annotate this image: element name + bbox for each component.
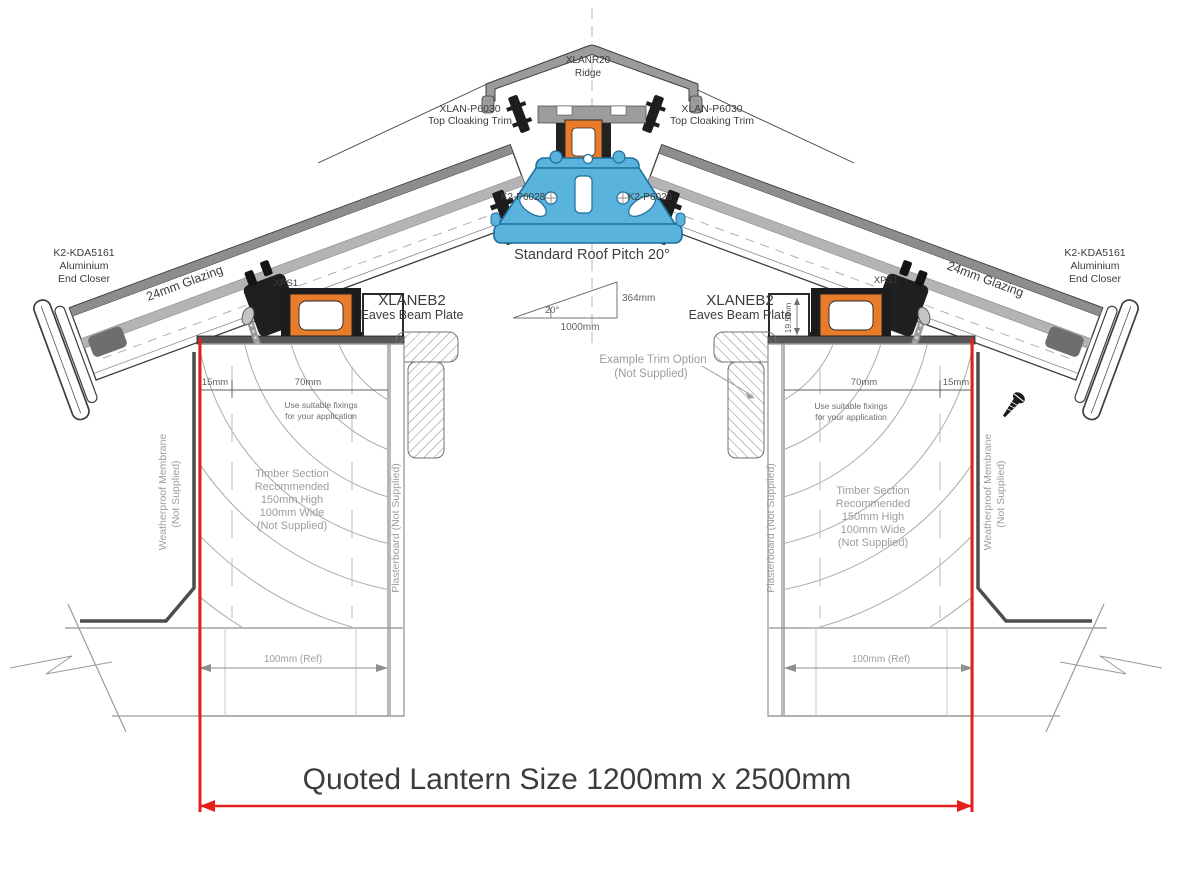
timber-note-right-2: Recommended xyxy=(836,498,911,510)
plasterboard-note-left: Plasterboard (Not Supplied) xyxy=(390,463,402,593)
end-closer-code-right: K2-KDA5161 xyxy=(1064,247,1125,259)
roof-pitch-label: Standard Roof Pitch 20° xyxy=(514,247,670,263)
timber-note-right-5: (Not Supplied) xyxy=(838,537,908,549)
plasterboard-note-right: Plasterboard (Not Supplied) xyxy=(765,463,777,593)
eaves-beam-code-left: XLANEB2 xyxy=(378,292,446,309)
end-closer-line3-right: End Closer xyxy=(1069,273,1121,285)
end-closer-line2-left: Aluminium xyxy=(59,260,108,272)
screw-icon xyxy=(999,390,1027,421)
fixing-note-right-1: Use suitable fixings xyxy=(814,401,887,411)
pitch-angle-label: 20° xyxy=(545,305,560,316)
timber-note-left-1: Timber Section xyxy=(255,468,329,480)
ref-dim-right: 100mm (Ref) xyxy=(852,654,910,665)
timber-note-left-5: (Not Supplied) xyxy=(257,520,327,532)
eaves-beam-name-right: Eaves Beam Plate xyxy=(689,308,792,322)
membrane-note-left-1: Weatherproof Membrane xyxy=(157,434,169,551)
pitch-run-label: 1000mm xyxy=(561,322,600,333)
timber-note-right-1: Timber Section xyxy=(836,485,910,497)
xps1-label-right: XPS1 xyxy=(874,275,898,286)
quoted-size-label: Quoted Lantern Size 1200mm x 2500mm xyxy=(303,763,852,796)
top-cloaking-trim-name-right: Top Cloaking Trim xyxy=(670,115,754,127)
fixing-note-left-2: for your application xyxy=(285,411,357,421)
ref-dim-left: 100mm (Ref) xyxy=(264,654,322,665)
timber-note-left-3: 150mm High xyxy=(261,494,323,506)
end-closer-code-left: K2-KDA5161 xyxy=(53,247,114,259)
eaves-beam-name-left: Eaves Beam Plate xyxy=(361,308,464,322)
quoted-dimension xyxy=(200,800,972,812)
ridge-bolt-code-left: K2-P6028 xyxy=(501,192,546,203)
offset-dim-left: 15mm xyxy=(202,377,228,388)
trim-option-label-1: Example Trim Option xyxy=(599,354,706,366)
end-closer-line3-left: End Closer xyxy=(58,273,110,285)
eaves-beam-code-right: XLANEB2 xyxy=(706,292,774,309)
ridge-code-label: XLANR20 xyxy=(566,55,611,66)
timber-note-right-4: 100mm Wide xyxy=(841,524,906,536)
ridge-name-label: Ridge xyxy=(575,68,602,79)
membrane-note-right-2: (Not Supplied) xyxy=(995,460,1007,527)
offset-dim-right: 15mm xyxy=(943,377,969,388)
roof-lantern-section-drawing: XLANR20 Ridge XLAN-P6030 Top Cloaking Tr… xyxy=(0,0,1184,872)
timber-note-left-2: Recommended xyxy=(255,481,330,493)
membrane-note-left-2: (Not Supplied) xyxy=(170,460,182,527)
top-cloaking-trim-code-right: XLAN-P6030 xyxy=(681,103,742,115)
pitch-rise-label: 364mm xyxy=(622,293,655,304)
timber-fix-dim-left: 70mm xyxy=(295,377,321,388)
timber-note-left-4: 100mm Wide xyxy=(260,507,325,519)
timber-fix-dim-right: 70mm xyxy=(851,377,877,388)
pitch-triangle xyxy=(513,282,617,318)
membrane-note-right-1: Weatherproof Membrane xyxy=(982,434,994,551)
upstand-dim-label: 19.5mm xyxy=(783,303,793,334)
fixing-note-right-2: for your application xyxy=(815,412,887,422)
top-cloaking-trim-code-left: XLAN-P6030 xyxy=(439,103,500,115)
end-closer-line2-right: Aluminium xyxy=(1070,260,1119,272)
fixing-note-left-1: Use suitable fixings xyxy=(284,400,357,410)
ridge-bolt-code-right: K2-P6028 xyxy=(628,192,673,203)
timber-note-right-3: 150mm High xyxy=(842,511,904,523)
xps1-label-left: XPS1 xyxy=(274,278,298,289)
top-cloaking-trim-name-left: Top Cloaking Trim xyxy=(428,115,512,127)
trim-option-label-2: (Not Supplied) xyxy=(614,368,688,380)
